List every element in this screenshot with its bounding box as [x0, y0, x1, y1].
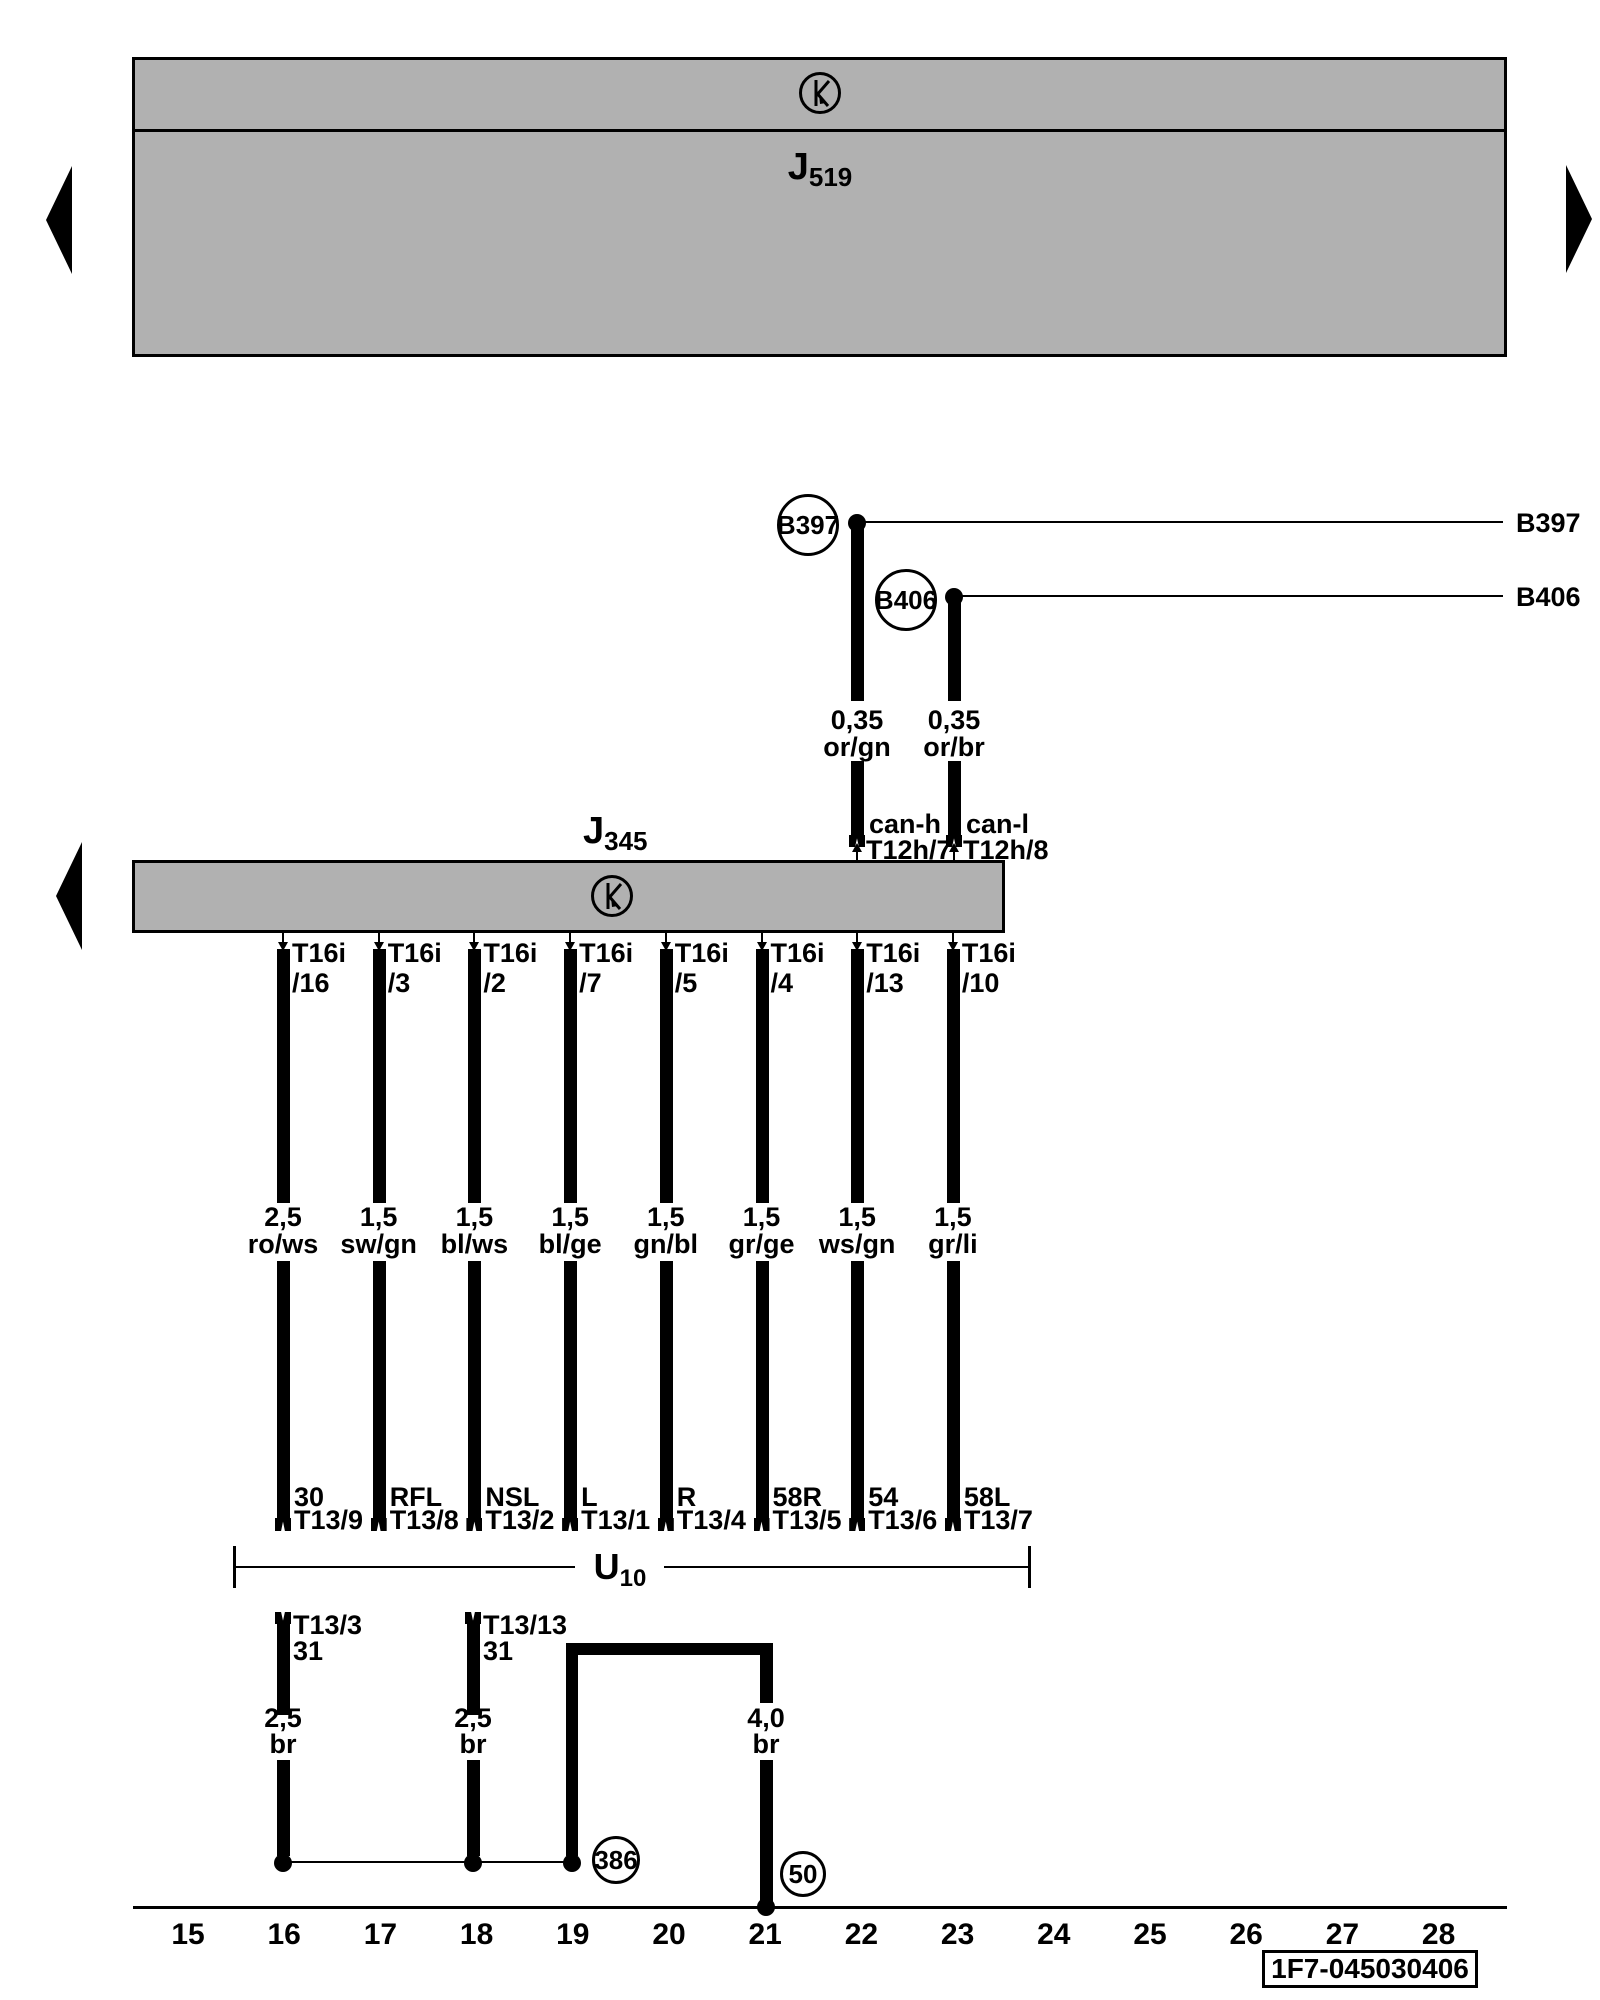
wire-upper-segment	[373, 949, 386, 1203]
b406-right-label: B406	[1516, 584, 1581, 611]
nav-arrow-left-icon[interactable]	[46, 166, 72, 274]
pin-connector-label: T16i	[579, 940, 633, 967]
track-number: 16	[252, 1920, 316, 1950]
wire-upper-segment	[756, 949, 769, 1203]
wire-end-connector-icon	[849, 1518, 865, 1531]
j345-control-unit-box	[132, 860, 1005, 933]
j345-letter: J	[583, 810, 604, 852]
pin-label: T13/13	[483, 1612, 567, 1639]
can-l-wire-upper	[948, 595, 961, 701]
u10-bracket-line-right	[664, 1566, 1030, 1568]
b397-node-label: B397	[777, 510, 839, 541]
wire-end-connector-icon	[754, 1518, 770, 1531]
wire-lower-segment	[277, 1261, 290, 1518]
heavy-ground-junction-dot	[563, 1854, 581, 1872]
can-h-wire-upper	[851, 521, 864, 701]
b397-branch-line	[857, 521, 1503, 523]
wire-end-connector-icon	[658, 1518, 674, 1531]
track-number: 27	[1310, 1920, 1374, 1950]
diagram-part-number: 1F7-045030406	[1271, 1953, 1469, 1984]
pin-label: T13/3	[293, 1612, 362, 1639]
wire-end-connector-icon	[945, 1518, 961, 1531]
heavy-ground-wire-lower	[760, 1760, 773, 1908]
b406-node-label: B406	[875, 585, 937, 616]
j519-letter: J	[788, 146, 809, 188]
wire-lower-segment	[277, 1760, 290, 1856]
wire-upper-segment	[660, 949, 673, 1203]
pin-slot-label: /13	[866, 970, 904, 997]
wire-lower-segment	[467, 1760, 480, 1856]
track-number: 26	[1214, 1920, 1278, 1950]
heavy-ground-color-label: br	[706, 1731, 826, 1758]
pin-slot-label: /2	[483, 970, 506, 997]
can-l-color-label: or/br	[894, 734, 1014, 761]
pin-connector-label: T16i	[962, 940, 1016, 967]
wire-upper-segment	[947, 949, 960, 1203]
track-number: 15	[156, 1920, 220, 1950]
terminal-pin-label: T13/4	[677, 1507, 746, 1534]
heavy-ground-top-bar	[566, 1643, 772, 1655]
wire-end-connector-icon	[466, 1518, 482, 1531]
control-unit-k-icon	[590, 874, 634, 918]
j345-number: 345	[604, 826, 647, 856]
terminal-pin-label: T13/6	[868, 1507, 937, 1534]
track-number: 25	[1118, 1920, 1182, 1950]
pin-slot-label: /10	[962, 970, 1000, 997]
terminal-pin-label: T13/8	[390, 1507, 459, 1534]
wire-upper-segment	[564, 949, 577, 1203]
ground-50-circle: 50	[780, 1851, 826, 1897]
ground-50-label: 50	[789, 1859, 818, 1890]
terminal-pin-label: T13/5	[773, 1507, 842, 1534]
diagram-part-number-box: 1F7-045030406	[1262, 1950, 1478, 1988]
can-h-wire-lower	[851, 761, 864, 835]
heavy-ground-gauge-label: 4,0	[706, 1705, 826, 1732]
j519-designation-label: J519	[720, 148, 920, 186]
b397-node-circle: B397	[777, 494, 839, 556]
ground-386-circle: 386	[592, 1836, 640, 1884]
can-h-signal-label: can-h	[869, 811, 941, 838]
ground-386-label: 386	[594, 1845, 637, 1876]
pin-slot-label: /7	[579, 970, 602, 997]
pin-connector-label: T16i	[292, 940, 346, 967]
wire-gauge-label: 2,5	[223, 1705, 343, 1732]
nav-arrow-mid-left-icon[interactable]	[56, 842, 82, 950]
junction-dot	[274, 1854, 292, 1872]
terminal-label: 31	[483, 1638, 513, 1665]
j519-number: 519	[809, 162, 852, 192]
track-number: 17	[348, 1920, 412, 1950]
pin-connector-label: T16i	[388, 940, 442, 967]
track-number: 21	[733, 1920, 797, 1950]
u10-letter: U	[594, 1546, 620, 1587]
terminal-pin-label: T13/9	[294, 1507, 363, 1534]
heavy-ground-left-leg	[566, 1643, 578, 1856]
pin-connector-label: T16i	[866, 940, 920, 967]
heavy-ground-wire-upper	[760, 1643, 773, 1703]
u10-designation-label: U10	[575, 1549, 665, 1586]
can-l-signal-label: can-l	[966, 811, 1029, 838]
track-ruler-line	[133, 1906, 1507, 1909]
wire-color-label: br	[413, 1731, 533, 1758]
wire-end-connector-icon	[562, 1518, 578, 1531]
wire-lower-segment	[564, 1261, 577, 1518]
u10-bracket-line-left	[234, 1566, 575, 1568]
terminal-pin-label: T13/1	[581, 1507, 650, 1534]
terminal-pin-label: T13/7	[964, 1507, 1033, 1534]
ground-junction-line	[283, 1861, 577, 1863]
b397-right-label: B397	[1516, 510, 1581, 537]
b406-node-circle: B406	[875, 569, 937, 631]
pin-slot-label: /5	[675, 970, 698, 997]
pin-connector-label: T16i	[483, 940, 537, 967]
wire-color-label: gr/li	[893, 1231, 1013, 1258]
nav-arrow-right-icon[interactable]	[1566, 165, 1592, 273]
wire-lower-segment	[373, 1261, 386, 1518]
wire-end-connector-icon	[371, 1518, 387, 1531]
track-number: 28	[1407, 1920, 1471, 1950]
wire-lower-segment	[660, 1261, 673, 1518]
junction-dot	[464, 1854, 482, 1872]
wire-color-label: br	[223, 1731, 343, 1758]
pin-connector-label: T16i	[675, 940, 729, 967]
can-l-gauge-label: 0,35	[894, 707, 1014, 734]
can-l-pin-lead	[953, 850, 955, 860]
track-number: 24	[1022, 1920, 1086, 1950]
wire-lower-segment	[468, 1261, 481, 1518]
terminal-pin-label: T13/2	[485, 1507, 554, 1534]
track-number: 19	[541, 1920, 605, 1950]
track-number: 20	[637, 1920, 701, 1950]
wire-end-connector-icon	[275, 1518, 291, 1531]
b406-branch-line	[954, 595, 1503, 597]
terminal-label: 31	[293, 1638, 323, 1665]
track-number: 18	[445, 1920, 509, 1950]
wire-upper-segment	[851, 949, 864, 1203]
wire-upper-segment	[277, 1623, 290, 1715]
can-l-wire-lower	[948, 761, 961, 835]
pin-slot-label: /3	[388, 970, 411, 997]
u10-number: 10	[620, 1565, 647, 1592]
can-h-pin-lead	[856, 850, 858, 860]
pin-slot-label: /4	[771, 970, 794, 997]
wire-upper-segment	[277, 949, 290, 1203]
wiring-diagram-page: J519 B397 B397 0,35 or/gn can-h T12h/7 B…	[0, 0, 1600, 2000]
control-unit-k-icon	[798, 71, 842, 115]
wire-lower-segment	[947, 1261, 960, 1518]
pin-slot-label: /16	[292, 970, 330, 997]
j345-designation-label: J345	[583, 812, 648, 850]
wire-gauge-label: 1,5	[893, 1204, 1013, 1231]
track-number: 22	[829, 1920, 893, 1950]
j519-box-divider	[135, 129, 1504, 132]
wire-upper-segment	[468, 949, 481, 1203]
wire-gauge-label: 2,5	[413, 1705, 533, 1732]
wire-lower-segment	[756, 1261, 769, 1518]
wire-upper-segment	[467, 1623, 480, 1715]
track-number: 23	[926, 1920, 990, 1950]
wire-lower-segment	[851, 1261, 864, 1518]
pin-connector-label: T16i	[771, 940, 825, 967]
